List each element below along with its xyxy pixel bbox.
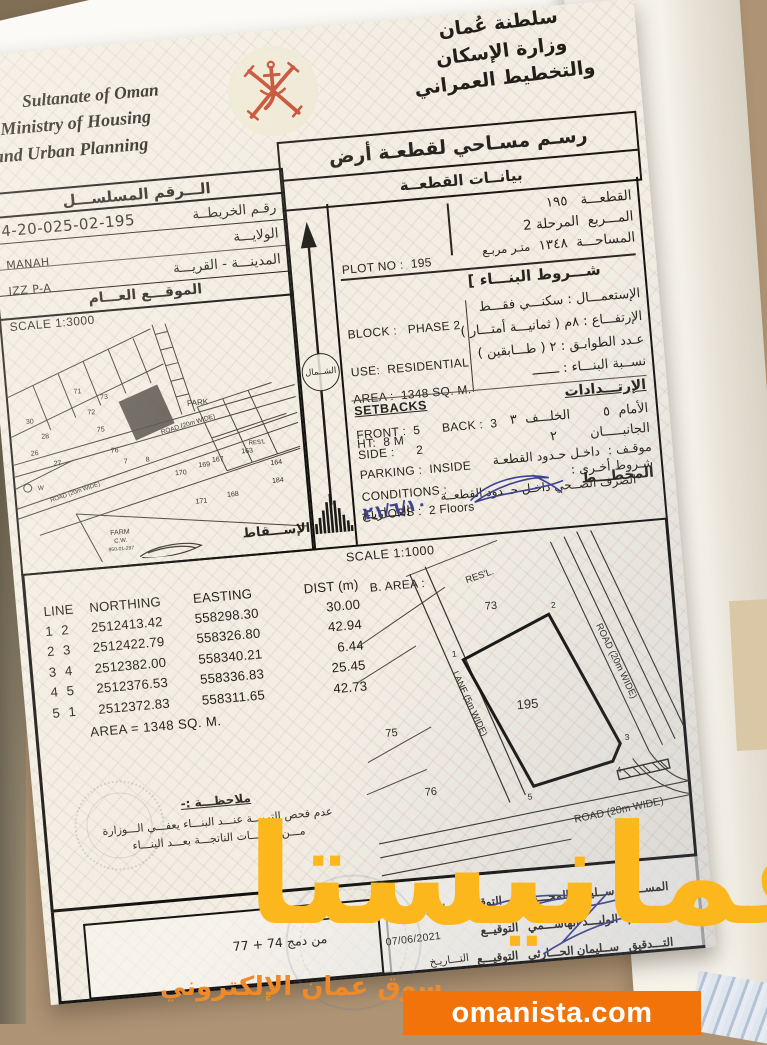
culvert-symbol <box>617 759 670 779</box>
svg-text:LANE (5m WIDE): LANE (5m WIDE) <box>451 669 490 737</box>
block-label-ar: المـــربع <box>587 208 634 228</box>
svg-text:PARK: PARK <box>187 397 210 408</box>
svg-text:1: 1 <box>451 648 457 658</box>
svg-text:RES'L: RES'L <box>248 439 266 447</box>
neighbor-boundaries <box>346 540 519 794</box>
block-value-ar: المرحلة 2 <box>522 213 579 234</box>
svg-text:3: 3 <box>624 732 630 742</box>
svg-text:73: 73 <box>100 394 108 402</box>
oman-emblem-icon <box>233 51 313 131</box>
watermark-brand: عمانيستا <box>322 800 767 952</box>
plot-label-ar: القطعـــة <box>580 187 633 207</box>
svg-text:171: 171 <box>195 498 207 506</box>
svg-text:28: 28 <box>41 433 49 441</box>
oman-national-emblem-icon <box>224 43 322 141</box>
col-line: LINE <box>43 600 90 619</box>
wilaya-label: الولايـــة <box>233 225 280 245</box>
svg-text:195: 195 <box>516 696 539 713</box>
svg-text:RES'L.: RES'L. <box>464 566 495 586</box>
plot-value-ar: ١٩٥ <box>545 193 568 211</box>
svg-text:4: 4 <box>616 765 622 775</box>
svg-text:2: 2 <box>551 600 557 610</box>
svg-text:W: W <box>38 485 46 493</box>
svg-text:76: 76 <box>111 447 119 455</box>
planner-signature <box>462 462 575 511</box>
cardboard-patch <box>729 599 767 751</box>
svg-text:27: 27 <box>53 460 61 468</box>
coordinates-table: LINE NORTHING EASTING DIST (m) 122512413… <box>43 576 374 743</box>
conditions-arabic: الإستعمـــال : سكنـــي فقـــط الإرتفـــا… <box>458 283 647 390</box>
svg-text:167: 167 <box>212 456 224 464</box>
area-unit-ar: متـر مربـع <box>481 239 530 257</box>
ministry-title-english: Sultanate of Oman Ministry of Housing an… <box>0 69 245 171</box>
map-number-label: رقـم الخريطــة <box>192 199 277 222</box>
watermark-site-badge: omanista.com <box>403 991 701 1035</box>
use-en: USE: RESIDENTIAL <box>350 350 470 384</box>
area-label-ar: المساحـــة <box>575 229 635 250</box>
photo-of-scanned-land-survey: { "watermark":{"brand":"عمانيستا","tagli… <box>0 0 767 1024</box>
svg-text:170: 170 <box>175 469 187 477</box>
svg-text:164: 164 <box>270 459 282 467</box>
svg-text:75: 75 <box>97 426 105 434</box>
svg-text:30: 30 <box>26 418 34 426</box>
svg-text:168: 168 <box>227 491 239 499</box>
plot-data-arabic: القطعـــة ١٩٥ المـــربع المرحلة 2 المساح… <box>478 185 637 261</box>
svg-text:75: 75 <box>385 727 398 740</box>
watermark-site-url: omanista.com <box>452 997 653 1030</box>
svg-text:73: 73 <box>484 600 497 613</box>
well-marker <box>23 484 32 493</box>
svg-text:184: 184 <box>272 477 284 485</box>
svg-text:72: 72 <box>87 409 95 417</box>
svg-text:169: 169 <box>198 461 210 469</box>
svg-text:950-01-297: 950-01-297 <box>108 545 134 553</box>
area-value-ar: ١٣٤٨ <box>538 235 568 253</box>
plot-data-panel: القطعـــة ١٩٥ المـــربع المرحلة 2 المساح… <box>328 177 668 545</box>
svg-text:26: 26 <box>31 450 39 458</box>
svg-text:C.W.: C.W. <box>114 538 128 545</box>
watermark-tagline: سوق عمان الإلكتروني <box>160 972 443 1002</box>
graphic-scale-bars <box>312 492 353 534</box>
handwritten-scribble <box>139 542 202 559</box>
svg-text:FARM: FARM <box>110 528 130 537</box>
svg-text:ROAD (20m WIDE): ROAD (20m WIDE) <box>593 622 639 701</box>
svg-text:163: 163 <box>241 447 253 455</box>
svg-text:71: 71 <box>73 388 81 396</box>
